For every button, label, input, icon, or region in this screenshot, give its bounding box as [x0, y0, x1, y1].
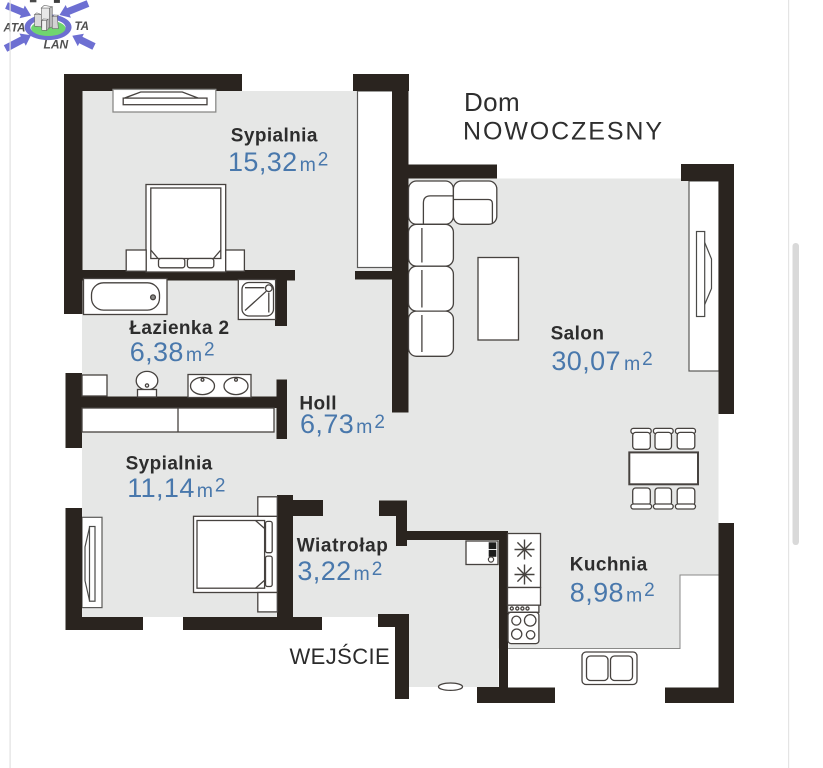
svg-text:WEJŚCIE: WEJŚCIE [290, 644, 391, 669]
svg-text:TA: TA [75, 21, 89, 33]
svg-text:Salon: Salon [551, 324, 605, 345]
svg-text:Sypialnia: Sypialnia [126, 454, 213, 475]
svg-text:LAN: LAN [44, 38, 69, 52]
svg-text:Dom: Dom [464, 87, 520, 117]
svg-text:Wiatrołap: Wiatrołap [297, 535, 389, 556]
svg-text:Sypialnia: Sypialnia [231, 126, 318, 147]
svg-text:ATA: ATA [3, 23, 26, 35]
svg-text:Kuchnia: Kuchnia [570, 555, 648, 576]
svg-text:NOWOCZESNY: NOWOCZESNY [463, 118, 664, 146]
